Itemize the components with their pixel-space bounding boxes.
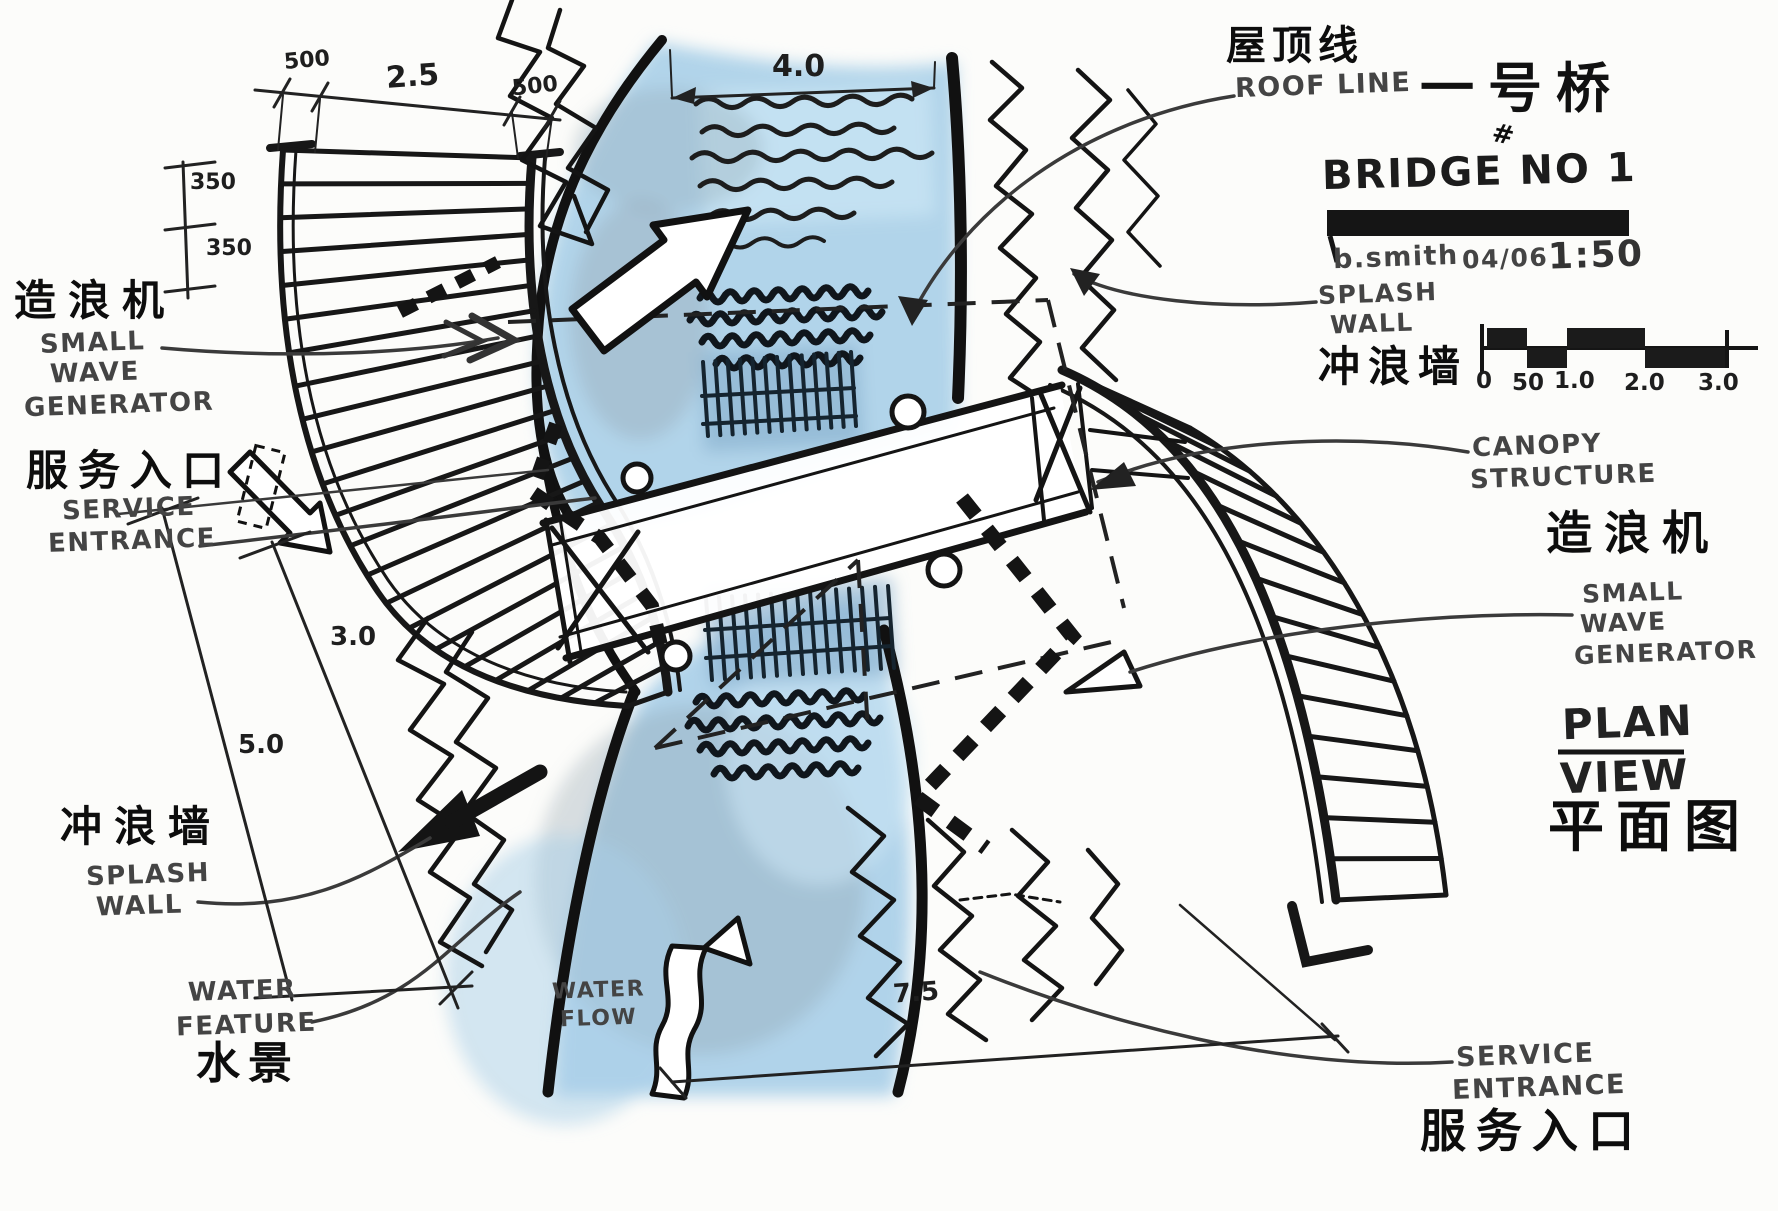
dim-7-5: 7.5: [892, 978, 940, 1007]
scale-tick-3: 3.0: [1698, 372, 1739, 395]
label-splash-wall-left-en2: WALL: [96, 891, 184, 920]
label-splash-wall-right-cn: 冲浪墙: [1318, 346, 1468, 388]
right-walkway-ties: [1062, 370, 1446, 900]
dim-350-upper: 350: [190, 172, 236, 194]
label-wave-generator-left-en3: GENERATOR: [24, 389, 215, 422]
scale-tick-2: 2.0: [1624, 372, 1665, 395]
sheet-author: b.smith: [1333, 242, 1460, 273]
dim-2-5: 2.5: [385, 60, 440, 94]
label-service-entrance-left-en2: ENTRANCE: [48, 525, 217, 557]
label-wave-generator-left-en2: WAVE: [50, 358, 141, 387]
label-splash-wall-right-en1: SPLASH: [1318, 279, 1438, 308]
sheet-title-en: BRIDGE NO 1: [1322, 148, 1638, 196]
label-water-flow-en1: WATER: [552, 978, 646, 1003]
label-wave-generator-right-en2: WAVE: [1580, 608, 1667, 636]
label-roofline-en: ROOF LINE: [1235, 69, 1412, 102]
sheet-date: 04/06: [1462, 245, 1549, 273]
label-wave-generator-left-cn: 造浪机: [14, 280, 176, 322]
plan-sheet: 屋顶线 ROOF LINE 一号桥 # BRIDGE NO 1 b.smith …: [0, 0, 1778, 1211]
label-view: VIEW: [1559, 754, 1690, 800]
label-water-feature-en2: FEATURE: [176, 1010, 318, 1041]
label-water-feature-cn: 水景: [196, 1042, 300, 1086]
dim-500-right: 500: [511, 74, 559, 101]
label-wave-generator-right-en1: SMALL: [1582, 578, 1684, 607]
sheet-title-cn: 一号桥: [1420, 62, 1624, 116]
label-service-entrance-left-cn: 服务入口: [26, 450, 234, 492]
label-wave-generator-right-cn: 造浪机: [1546, 510, 1720, 556]
label-water-feature-en1: WATER: [188, 976, 297, 1006]
scale-tick-50: 50: [1512, 372, 1544, 395]
label-service-entrance-left-en1: SERVICE: [62, 494, 196, 525]
dim-500-left: 500: [283, 48, 331, 74]
label-wave-generator-left-en1: SMALL: [40, 328, 146, 358]
dim-350-lower: 350: [206, 238, 252, 260]
sheet-scale: 1:50: [1547, 236, 1644, 275]
label-canopy-en1: CANOPY: [1472, 431, 1603, 462]
label-wave-generator-right-en3: GENERATOR: [1574, 637, 1758, 668]
label-plan: PLAN: [1561, 700, 1694, 747]
label-splash-wall-right-en2: WALL: [1330, 310, 1414, 338]
label-water-flow-en2: FLOW: [560, 1007, 638, 1032]
dim-4-0: 4.0: [772, 52, 825, 82]
label-canopy-en2: STRUCTURE: [1470, 461, 1658, 494]
label-service-entrance-right-en1: SERVICE: [1456, 1040, 1595, 1072]
label-roofline-cn: 屋顶线: [1226, 26, 1364, 66]
label-splash-wall-left-en1: SPLASH: [86, 860, 211, 890]
label-service-entrance-right-cn: 服务入口: [1420, 1108, 1644, 1154]
dim-5-0: 5.0: [238, 732, 284, 758]
scale-tick-1: 1.0: [1554, 370, 1595, 393]
scale-bar: [1482, 324, 1758, 372]
label-plan-view-cn: 平面图: [1548, 800, 1752, 856]
dim-3-0: 3.0: [330, 624, 376, 650]
label-service-entrance-right-en2: ENTRANCE: [1452, 1071, 1627, 1104]
label-splash-wall-left-cn: 冲浪墙: [60, 806, 222, 848]
scale-tick-0: 0: [1476, 370, 1492, 393]
